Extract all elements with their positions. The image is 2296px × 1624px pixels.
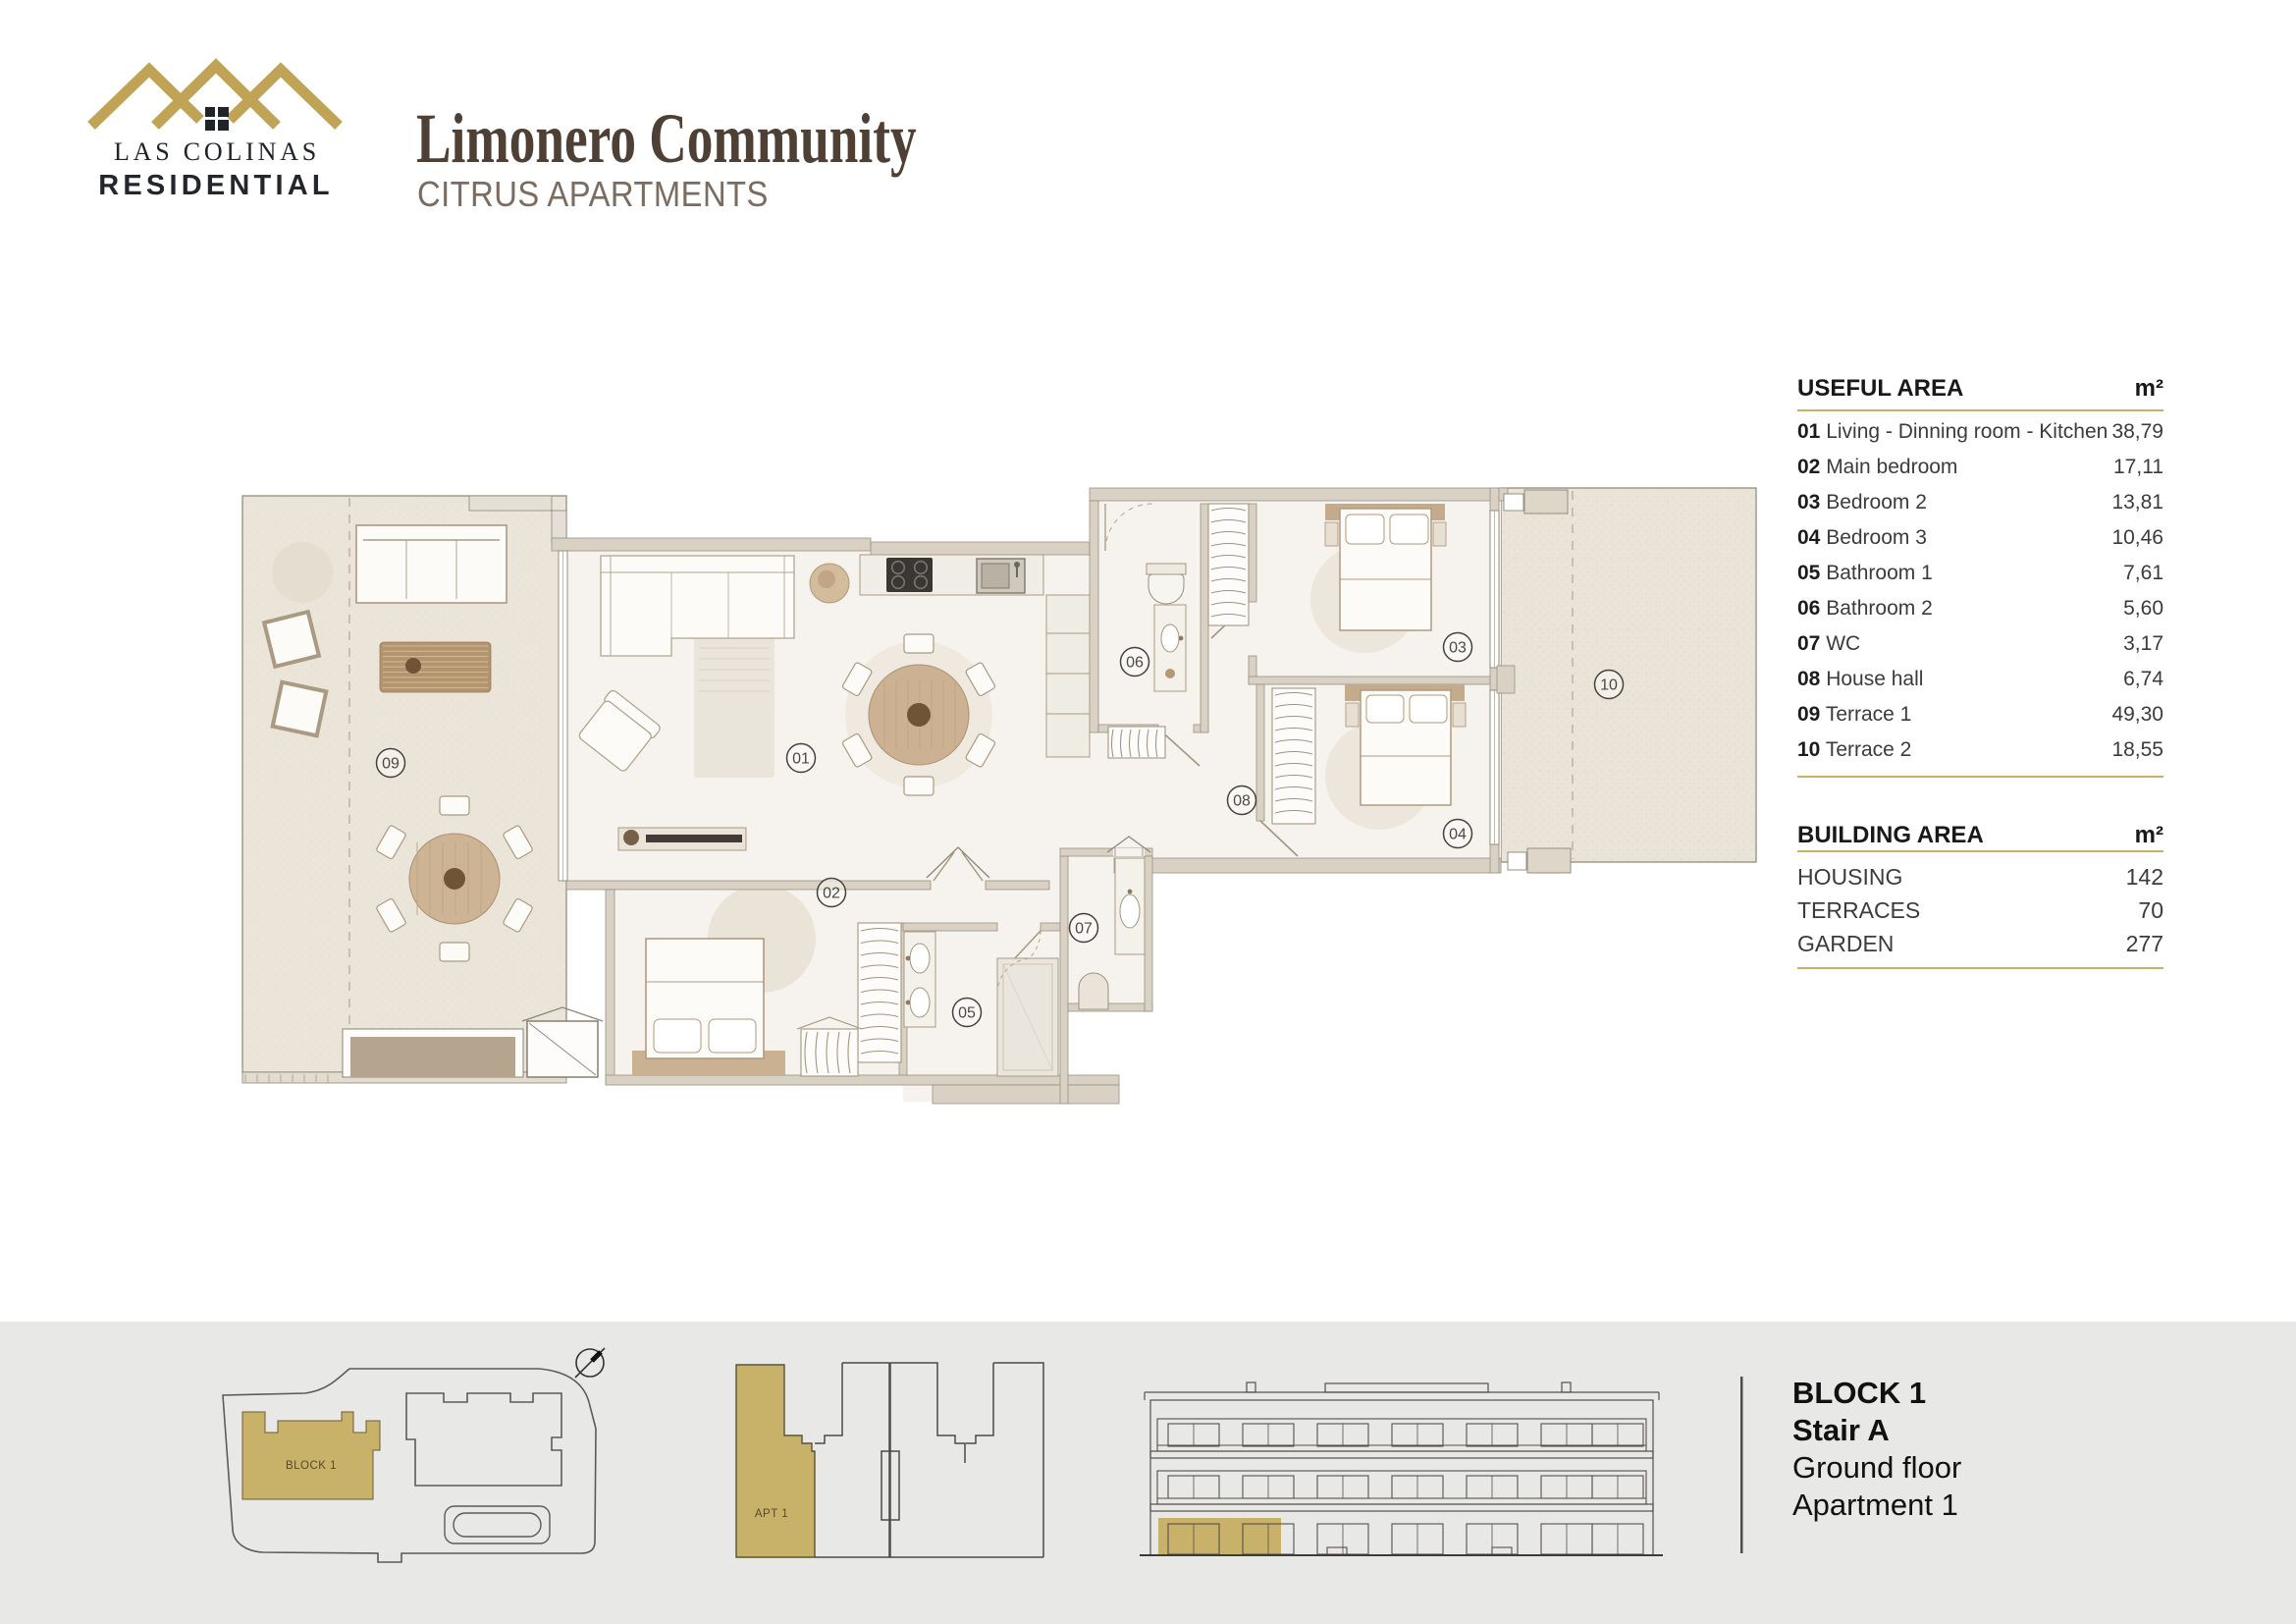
svg-text:RESIDENTIAL: RESIDENTIAL bbox=[98, 170, 334, 201]
svg-text:LAS COLINAS: LAS COLINAS bbox=[114, 137, 320, 166]
svg-text:03: 03 bbox=[1449, 640, 1467, 657]
svg-text:BLOCK 1: BLOCK 1 bbox=[286, 1460, 337, 1472]
svg-text:08: 08 bbox=[1233, 793, 1251, 810]
svg-text:01: 01 bbox=[792, 751, 810, 768]
svg-text:10: 10 bbox=[1600, 677, 1618, 694]
svg-text:APT 1: APT 1 bbox=[755, 1508, 788, 1520]
svg-text:02: 02 bbox=[823, 886, 840, 902]
svg-text:09: 09 bbox=[382, 756, 400, 773]
svg-text:04: 04 bbox=[1449, 827, 1467, 843]
svg-text:07: 07 bbox=[1075, 921, 1093, 938]
svg-text:06: 06 bbox=[1126, 655, 1144, 672]
svg-text:05: 05 bbox=[958, 1005, 976, 1022]
